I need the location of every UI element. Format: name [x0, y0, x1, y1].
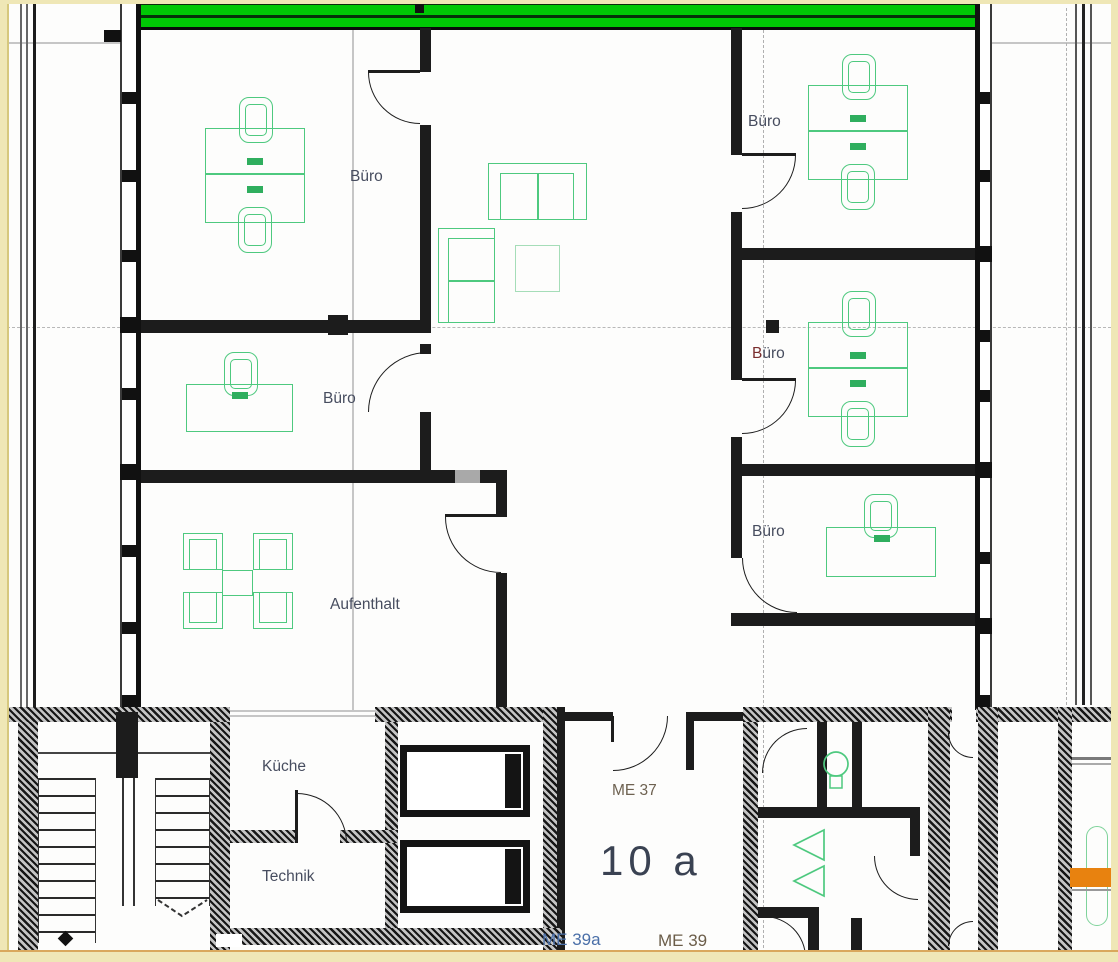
room-label-buero: Büro — [748, 113, 781, 130]
sheet-border — [0, 0, 1118, 4]
facade-line — [1082, 0, 1085, 705]
wall — [557, 707, 565, 950]
office-chair-icon — [841, 401, 875, 447]
desk-group — [186, 384, 293, 432]
desk-divider — [808, 130, 908, 132]
sheet-border — [0, 950, 1118, 962]
room-label-technik: Technik — [262, 868, 315, 885]
facade-line — [1075, 0, 1077, 705]
desk-group — [205, 128, 305, 223]
core-wall — [743, 722, 758, 950]
door-swing-icon — [297, 793, 347, 843]
room-label-buero: Büro — [752, 345, 785, 362]
core-wall — [978, 707, 998, 950]
window-mullion — [975, 462, 992, 478]
window-mullion — [122, 170, 139, 182]
wall — [496, 483, 507, 517]
chair-seat — [259, 592, 287, 623]
wall — [141, 470, 507, 483]
wall — [731, 437, 742, 558]
desk-group — [826, 527, 936, 577]
door-swing-icon — [368, 72, 420, 124]
monitor-icon — [874, 535, 890, 542]
core-wall — [230, 928, 562, 945]
office-chair-icon — [841, 164, 875, 210]
core-wall — [0, 707, 230, 722]
chair-seat — [189, 539, 217, 570]
sofa-divider — [448, 280, 495, 282]
room-label-buero: Büro — [752, 523, 785, 540]
wall — [758, 807, 920, 818]
door-swing-icon — [948, 733, 973, 758]
floor-plan: Büro Büro Büro Büro Büro Aufenthalt Küch… — [0, 0, 1118, 962]
bar-mid-line — [138, 15, 975, 18]
desk-divider — [205, 173, 305, 175]
elevator-icon — [400, 745, 530, 817]
door-swing-icon — [948, 921, 973, 946]
monitor-icon — [232, 392, 248, 399]
monitor-icon — [850, 380, 866, 387]
window-mullion — [120, 317, 141, 333]
room-label-buero: Büro — [323, 390, 356, 407]
window-mullion — [122, 622, 139, 634]
window-mullion — [122, 388, 139, 400]
meeting-table-group — [183, 533, 293, 630]
wall — [686, 712, 694, 770]
window-mullion — [977, 330, 990, 342]
room-label-buero: Büro — [350, 168, 383, 185]
core-wall — [375, 707, 555, 722]
stairs-icon — [38, 778, 96, 943]
window-mullion — [977, 695, 990, 707]
wall — [496, 573, 507, 712]
door-swing-icon — [613, 716, 668, 771]
elevator-counterweight — [505, 849, 521, 904]
door-swing-icon — [445, 517, 501, 573]
window-mullion — [122, 695, 139, 707]
grid-line — [990, 42, 1111, 44]
stair-arrow-icon — [155, 898, 210, 920]
window-mullion — [977, 170, 990, 182]
door-swing-icon — [742, 155, 796, 209]
wall — [742, 248, 975, 260]
partition-line — [230, 715, 376, 717]
grid-line — [1066, 8, 1067, 705]
washbasin-icon — [820, 748, 854, 792]
wall — [565, 712, 613, 721]
monitor-icon — [850, 115, 866, 122]
window-mullion — [122, 92, 139, 104]
chair-seat — [189, 592, 217, 623]
monitor-icon — [247, 158, 263, 165]
stairs-icon — [155, 778, 210, 906]
wall — [420, 28, 431, 72]
window-mullion — [120, 464, 141, 480]
facade-line — [33, 0, 36, 712]
facade-line — [26, 0, 28, 712]
core-wall — [743, 707, 952, 722]
core-wall — [1058, 707, 1072, 950]
stair-wall — [18, 722, 38, 950]
wall — [731, 28, 742, 155]
window-mullion — [975, 618, 992, 634]
unit-label-me39a: ME 39a — [542, 931, 601, 950]
unit-label-me39: ME 39 — [658, 932, 707, 951]
facade-green-bar — [138, 3, 975, 30]
window-mullion — [975, 246, 992, 262]
core-wall — [230, 830, 297, 843]
coffee-table-icon — [515, 245, 560, 292]
door-swing-icon — [742, 558, 797, 613]
facade-line — [1090, 0, 1092, 705]
door-swing-icon — [874, 856, 918, 900]
wall — [694, 712, 743, 721]
monitor-icon — [247, 186, 263, 193]
chair-seat — [259, 539, 287, 570]
wall — [910, 818, 920, 856]
wall — [731, 212, 742, 380]
monitor-icon — [850, 352, 866, 359]
wall — [420, 412, 431, 470]
sheet-border — [0, 0, 7, 962]
window-mullion — [122, 250, 139, 262]
room-label-aufenthalt: Aufenthalt — [330, 596, 400, 613]
window-band-left — [120, 4, 141, 712]
partition-line — [230, 710, 376, 712]
wall-niche — [216, 934, 242, 947]
wall-junction — [766, 320, 779, 333]
door-swing-icon — [368, 352, 428, 412]
unit-label-10a: 10 a — [600, 838, 702, 884]
facade-line — [20, 0, 22, 712]
wall — [141, 320, 431, 333]
window-mullion — [104, 30, 121, 42]
desk-divider — [808, 367, 908, 369]
monitor-icon — [850, 143, 866, 150]
stair-rail — [133, 778, 135, 906]
window-mullion — [977, 390, 990, 402]
unit-label-me37: ME 37 — [612, 782, 657, 799]
window-mullion — [977, 92, 990, 104]
window-band-right — [975, 4, 992, 710]
desk-group — [808, 322, 908, 417]
wall — [742, 464, 975, 476]
sheet-border — [1111, 0, 1118, 962]
wall-junction — [328, 315, 348, 335]
meeting-table-icon — [222, 570, 253, 596]
core-wall — [340, 830, 398, 843]
door-swing-icon — [762, 728, 807, 773]
sofa-divider — [537, 173, 539, 220]
office-chair-icon — [238, 207, 272, 253]
window-mullion — [122, 545, 139, 557]
desk-group — [808, 85, 908, 180]
window-mullion — [977, 552, 990, 564]
stair-center-wall — [116, 712, 138, 778]
stair-wall — [210, 722, 230, 950]
wall — [731, 613, 975, 626]
sofa-group — [438, 163, 588, 323]
sheet-border-line — [7, 0, 9, 962]
wall — [420, 125, 431, 320]
stair-rail — [122, 778, 124, 906]
elevator-counterweight — [505, 754, 521, 808]
urinal-icon — [790, 828, 830, 900]
wall-lintel — [455, 470, 480, 483]
room-label-kueche: Küche — [262, 758, 306, 775]
core-wall — [928, 707, 950, 950]
door-swing-icon — [742, 380, 796, 434]
elevator-icon — [400, 840, 530, 913]
